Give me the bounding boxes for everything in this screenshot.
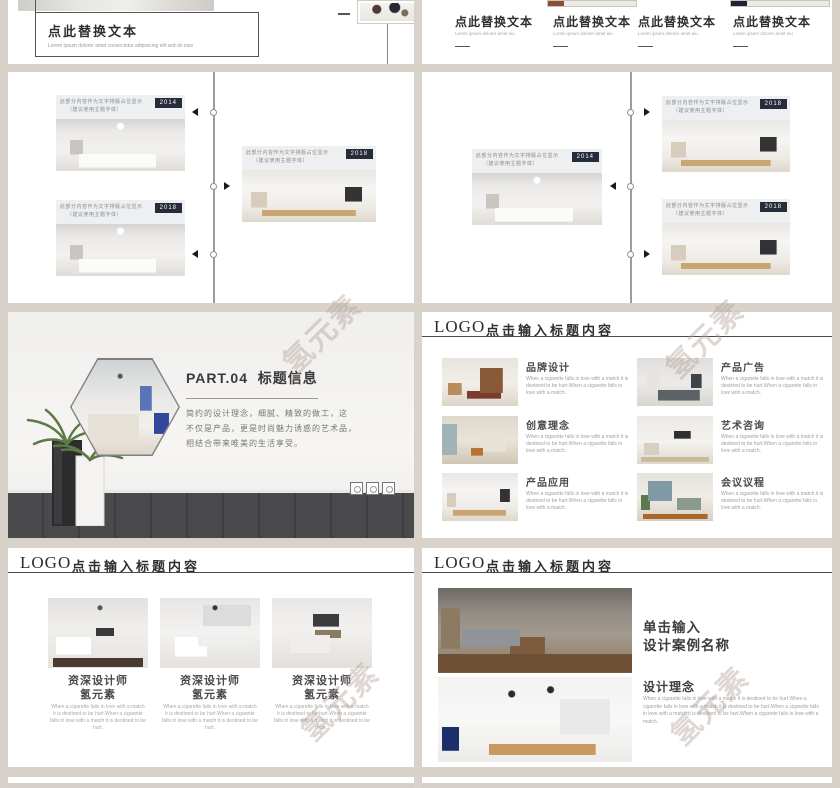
logo-text: LOGO <box>20 553 71 573</box>
service-title: 会议议程 <box>721 474 765 489</box>
case-title-line2: 设计案例名称 <box>643 634 730 654</box>
slide-thumb-peek-left[interactable] <box>8 777 414 788</box>
timeline-card: 此部分内容作为文字排版占位显示 （建议使用主题字体） 2018 <box>242 146 376 222</box>
header-underline <box>422 336 832 337</box>
service-item: 产品应用 When a cigarette falls in love with… <box>442 473 632 525</box>
designer-card: 资深设计师 氢元素 When a cigarette falls in love… <box>160 596 260 726</box>
designer-desc: When a cigarette falls in love with a ma… <box>50 704 146 732</box>
peek-content <box>8 783 414 788</box>
wall-switch <box>366 482 379 495</box>
slide-thumb-peek-right[interactable] <box>422 777 832 788</box>
interior-photo <box>472 173 602 225</box>
timeline-node <box>627 183 634 190</box>
timeline-card-header: 此部分内容作为文字排版占位显示 （建议使用主题字体） 2014 <box>472 149 602 173</box>
interior-photo <box>662 223 790 275</box>
interior-photo <box>56 224 185 276</box>
interior-photo <box>442 358 518 406</box>
header-underline <box>8 572 414 573</box>
slide-thumb-services[interactable]: LOGO 点击输入标题内容 品牌设计 When a cigarette fall… <box>422 312 832 538</box>
column-title: 点此替换文本 <box>455 13 533 30</box>
year-badge: 2018 <box>155 203 182 213</box>
interior-photo <box>637 473 713 521</box>
still-life-photo <box>360 3 414 21</box>
interior-photo <box>442 416 518 464</box>
service-title: 产品广告 <box>721 359 765 374</box>
slide-thumb-timeline-right[interactable]: 此部分内容作为文字排版占位显示 （建议使用主题字体） 2018 此部分内容作为文… <box>422 72 832 303</box>
service-title: 产品应用 <box>526 474 570 489</box>
column-subtitle: Lorem ipsum dolorer amet eiu <box>553 31 613 36</box>
service-item: 创意理念 When a cigarette falls in love with… <box>442 416 632 468</box>
slide-thumb-case[interactable]: LOGO 点击输入标题内容 单击输入 设计案例名称 设计理念 When a ci… <box>422 548 832 767</box>
year-badge: 2014 <box>572 152 599 162</box>
designer-desc: When a cigarette falls in love with a ma… <box>274 704 370 732</box>
designer-card: 资深设计师 氢元素 When a cigarette falls in love… <box>48 596 148 726</box>
arrow-right-icon <box>224 182 230 190</box>
arrow-left-icon <box>192 108 198 116</box>
column-title: 点此替换文本 <box>638 13 716 30</box>
timeline-card-header: 此部分内容作为文字排版占位显示 （建议使用主题字体） 2018 <box>56 200 185 224</box>
service-desc: When a cigarette falls in love with a ma… <box>721 491 827 512</box>
service-item: 艺术咨询 When a cigarette falls in love with… <box>637 416 827 468</box>
progress-fill-navy <box>731 1 747 6</box>
interior-photo <box>438 588 632 673</box>
interior-photo <box>242 170 376 222</box>
body-line: 相结合带来唯美的生活享受。 <box>186 436 414 451</box>
timeline-card-header: 此部分内容作为文字排版占位显示 （建议使用主题字体） 2018 <box>662 96 790 120</box>
service-title: 创意理念 <box>526 417 570 432</box>
year-badge: 2018 <box>346 149 373 159</box>
divider <box>186 398 318 399</box>
divider <box>387 24 388 64</box>
timeline-card-header: 此部分内容作为文字排版占位显示 （建议使用主题字体） 2014 <box>56 95 185 119</box>
service-desc: When a cigarette falls in love with a ma… <box>526 376 632 397</box>
section-title: PART.04 标题信息 <box>186 368 318 388</box>
service-title: 艺术咨询 <box>721 417 765 432</box>
designer-card: 资深设计师 氢元素 When a cigarette falls in love… <box>272 596 372 726</box>
arrow-left-icon <box>192 250 198 258</box>
interior-photo <box>662 120 790 172</box>
slide-thumb-designers[interactable]: LOGO 点击输入标题内容 资深设计师 氢元素 When a cigarette… <box>8 548 414 767</box>
year-badge: 2018 <box>760 99 787 109</box>
interior-photo <box>48 598 148 668</box>
timeline-node <box>210 109 217 116</box>
interior-photo <box>272 598 372 668</box>
case-title-line1: 单击输入 <box>643 616 701 636</box>
column-title: 点此替换文本 <box>733 13 811 30</box>
arrow-right-icon <box>644 250 650 258</box>
cover-subtitle: Lorem ipsum dolorer amet consectetur adi… <box>48 43 258 49</box>
section-body: 简约的设计理念，细腻、精致的做工，这 不仅是产品，更是时尚魅力诱惑的艺术品， 相… <box>186 406 414 451</box>
template-preview-page: 点此替换文本 Lorem ipsum dolorer amet consecte… <box>0 0 840 788</box>
interior-photo <box>160 598 260 668</box>
timeline-node <box>210 251 217 258</box>
interior-photo <box>637 358 713 406</box>
underline <box>638 46 653 47</box>
designer-desc: When a cigarette falls in love with a ma… <box>162 704 258 732</box>
logo-text: LOGO <box>434 317 485 337</box>
service-title: 品牌设计 <box>526 359 570 374</box>
part-title-text: 标题信息 <box>258 370 318 386</box>
interior-photo <box>438 677 632 762</box>
service-item: 品牌设计 When a cigarette falls in love with… <box>442 358 632 410</box>
timeline-card: 此部分内容作为文字排版占位显示 （建议使用主题字体） 2014 <box>472 149 602 225</box>
interior-photo <box>442 473 518 521</box>
progress-bar <box>547 0 637 7</box>
designer-name: 氢元素 <box>48 686 148 702</box>
interior-photo <box>56 119 185 171</box>
timeline-card-header: 此部分内容作为文字排版占位显示 （建议使用主题字体） 2018 <box>662 199 790 223</box>
interior-photo <box>18 0 214 11</box>
header-underline <box>422 572 832 573</box>
service-desc: When a cigarette falls in love with a ma… <box>526 434 632 455</box>
timeline-node <box>627 251 634 258</box>
logo-text: LOGO <box>434 553 485 573</box>
underline <box>733 46 748 47</box>
framed-photo <box>357 0 414 24</box>
timeline-card-header: 此部分内容作为文字排版占位显示 （建议使用主题字体） 2018 <box>242 146 376 170</box>
body-line: 简约的设计理念，细腻、精致的做工，这 <box>186 406 414 421</box>
timeline-card: 此部分内容作为文字排版占位显示 （建议使用主题字体） 2018 <box>662 199 790 275</box>
wall-switch <box>350 482 363 495</box>
body-line: 不仅是产品，更是时尚魅力诱惑的艺术品， <box>186 421 414 436</box>
part-number: PART.04 <box>186 370 248 386</box>
service-desc: When a cigarette falls in love with a ma… <box>526 491 632 512</box>
cover-text-box: 点此替换文本 Lorem ipsum dolorer amet consecte… <box>35 12 259 57</box>
slide-thumb-timeline-left[interactable]: 此部分内容作为文字排版占位显示 （建议使用主题字体） 2014 此部分内容作为文… <box>8 72 414 303</box>
wall-switch <box>382 482 395 495</box>
progress-bar <box>730 0 830 7</box>
slide-thumb-cover[interactable]: 点此替换文本 Lorem ipsum dolorer amet consecte… <box>8 0 414 64</box>
designer-name: 氢元素 <box>160 686 260 702</box>
slide-thumb-columns[interactable]: 点此替换文本 Lorem ipsum dolorer amet eiu 点此替换… <box>422 0 832 64</box>
timeline-node <box>627 109 634 116</box>
column-subtitle: Lorem ipsum dolorer amet eiu <box>455 31 515 36</box>
case-desc: When a cigarette falls in love with a ma… <box>643 696 819 726</box>
service-item: 会议议程 When a cigarette falls in love with… <box>637 473 827 525</box>
interior-photo <box>637 416 713 464</box>
service-desc: When a cigarette falls in love with a ma… <box>721 376 827 397</box>
timeline-card: 此部分内容作为文字排版占位显示 （建议使用主题字体） 2018 <box>56 200 185 276</box>
underline <box>553 46 568 47</box>
year-badge: 2018 <box>760 202 787 212</box>
arrow-right-icon <box>644 108 650 116</box>
underline <box>455 46 470 47</box>
cover-title: 点此替换文本 <box>48 21 258 40</box>
year-badge: 2014 <box>155 98 182 108</box>
timeline-card: 此部分内容作为文字排版占位显示 （建议使用主题字体） 2018 <box>662 96 790 172</box>
service-item: 产品广告 When a cigarette falls in love with… <box>637 358 827 410</box>
column-subtitle: Lorem ipsum dolorer amet eiu <box>733 31 793 36</box>
column-subtitle: Lorem ipsum dolorer amet eiu <box>638 31 698 36</box>
arrow-left-icon <box>610 182 616 190</box>
service-desc: When a cigarette falls in love with a ma… <box>721 434 827 455</box>
timeline-card: 此部分内容作为文字排版占位显示 （建议使用主题字体） 2014 <box>56 95 185 171</box>
designer-name: 氢元素 <box>272 686 372 702</box>
progress-fill-brown <box>548 1 564 6</box>
slide-thumb-section-cover[interactable]: PART.04 标题信息 简约的设计理念，细腻、精致的做工，这 不仅是产品，更是… <box>8 312 414 538</box>
timeline-node <box>210 183 217 190</box>
peek-content <box>422 783 832 788</box>
case-section-title: 设计理念 <box>643 678 695 695</box>
column-title: 点此替换文本 <box>553 13 631 30</box>
dash-divider <box>338 13 350 15</box>
